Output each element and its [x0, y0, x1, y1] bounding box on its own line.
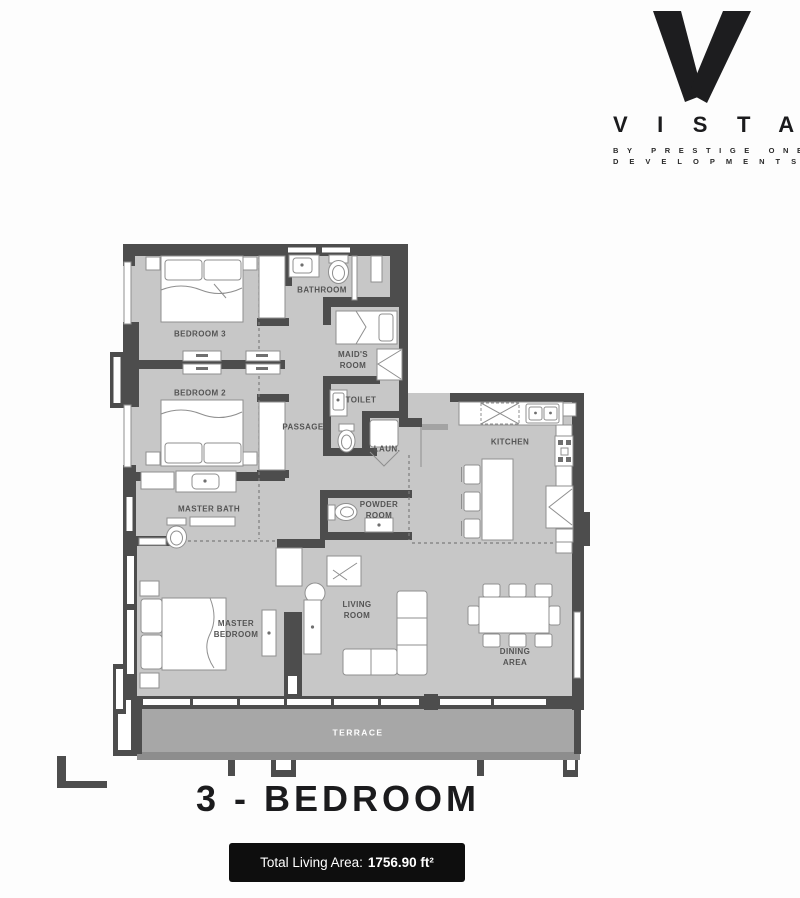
room-label-terrace: TERRACE	[333, 727, 384, 738]
bedroom3-furniture	[146, 256, 257, 322]
total-living-area-badge: Total Living Area: 1756.90 ft²	[229, 843, 465, 882]
area-label: Total Living Area:	[260, 855, 363, 870]
brand-logo: VISTA BY PRESTIGE ONE DEVELOPMENTS	[600, 0, 800, 180]
room-label-passage: PASSAGE	[282, 423, 323, 434]
room-label-master-bedroom: MASTER BEDROOM	[214, 619, 259, 641]
room-label-maids-room: MAID'S ROOM	[338, 350, 368, 372]
room-label-bedroom-2: BEDROOM 2	[174, 389, 226, 400]
brand-tagline-line1: BY PRESTIGE ONE	[613, 146, 800, 155]
plan-title: 3 - BEDROOM	[0, 778, 676, 820]
room-label-bedroom-3: BEDROOM 3	[174, 330, 226, 341]
bedroom2-furniture	[146, 400, 257, 466]
room-label-dining-area: DINING AREA	[500, 647, 530, 669]
room-label-living-room: LIVING ROOM	[342, 600, 371, 622]
room-label-master-bath: MASTER BATH	[178, 505, 240, 516]
floorplan-page: BEDROOM 3 BATHROOM MAID'S ROOM BEDROOM 2…	[0, 0, 800, 898]
room-label-kitchen: KITCHEN	[491, 438, 529, 449]
brand-tagline-line2: DEVELOPMENTS	[613, 157, 800, 166]
vista-v-logo-icon	[600, 0, 800, 110]
room-label-toilet: TOILET	[346, 396, 377, 407]
room-label-laundry: LAUN.	[374, 445, 400, 456]
area-value: 1756.90 ft²	[368, 855, 434, 870]
room-label-bathroom: BATHROOM	[297, 286, 347, 297]
room-label-powder-room: POWDER ROOM	[360, 500, 398, 522]
brand-name: VISTA	[613, 112, 800, 138]
